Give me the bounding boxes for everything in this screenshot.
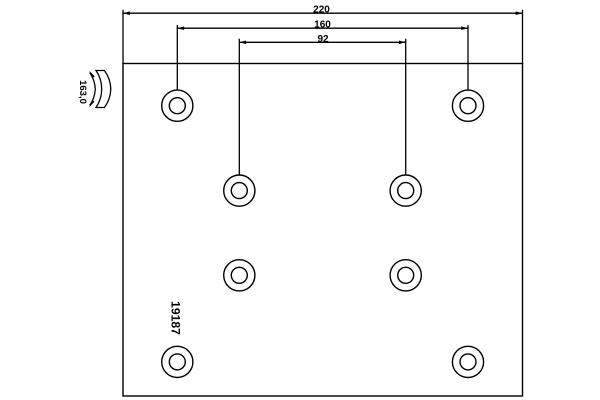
- svg-text:163,0: 163,0: [77, 80, 88, 104]
- svg-text:220: 220: [313, 5, 330, 16]
- svg-text:19187: 19187: [169, 301, 183, 335]
- svg-text:160: 160: [314, 20, 331, 31]
- svg-text:92: 92: [317, 34, 329, 45]
